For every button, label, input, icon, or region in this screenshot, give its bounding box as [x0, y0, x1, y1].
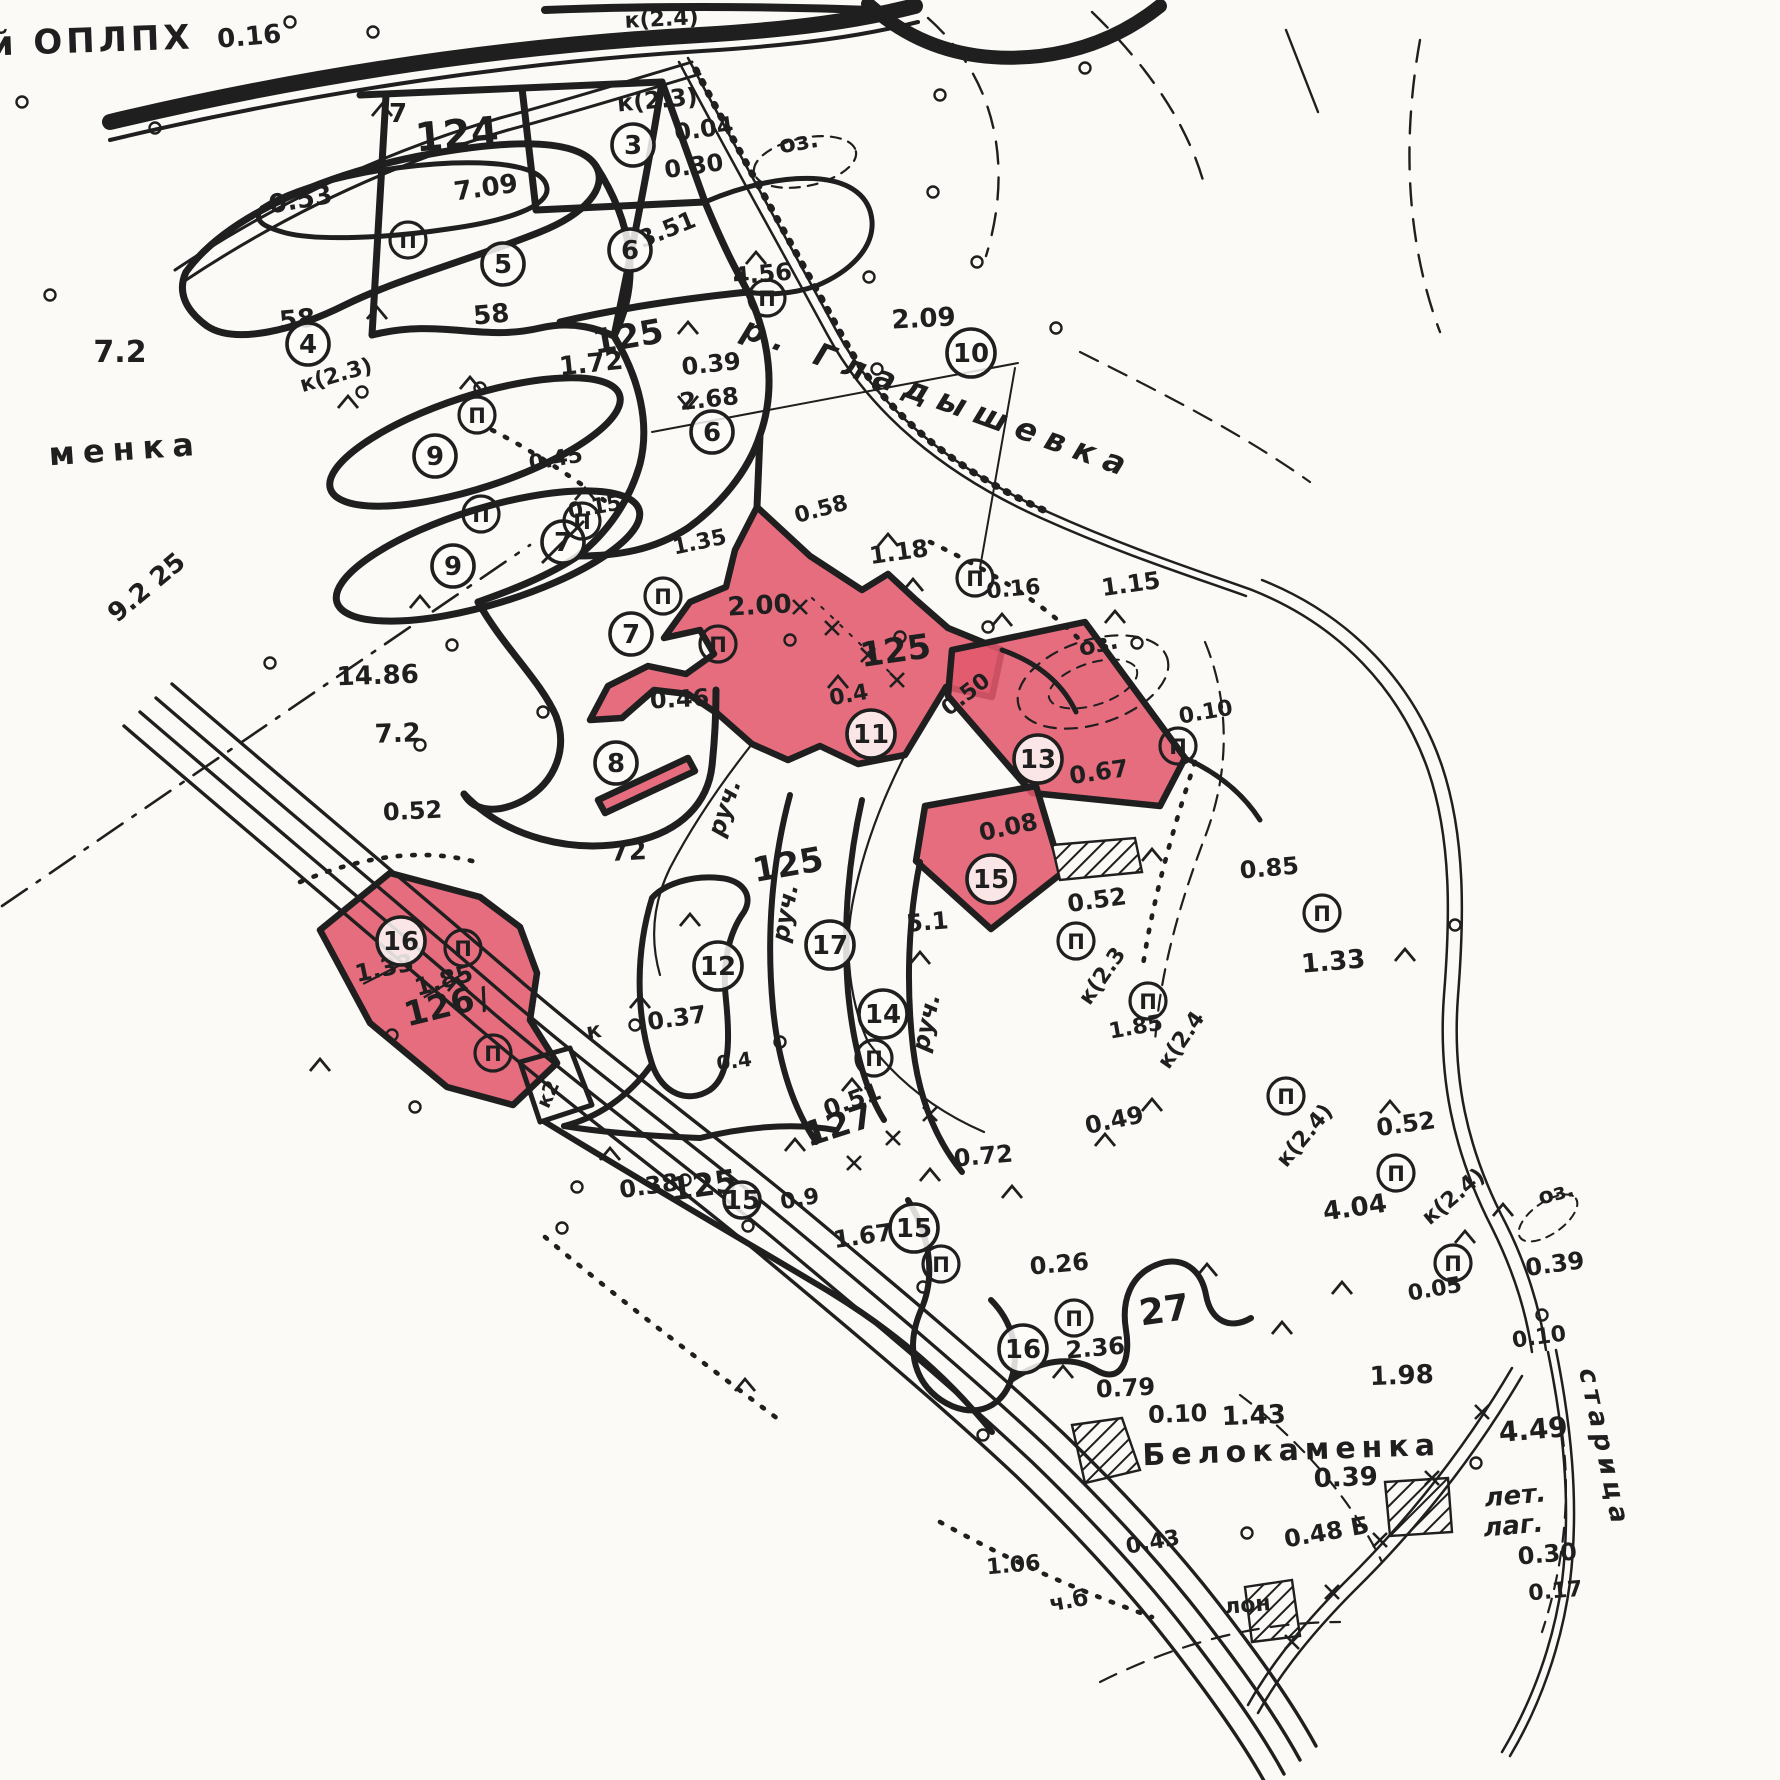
- map-label: 0.53: [266, 180, 334, 221]
- caret-symbol: [338, 396, 358, 408]
- caret-symbol: [1197, 1264, 1217, 1276]
- boundary-line: [464, 602, 561, 809]
- ring-symbol: [265, 658, 276, 669]
- plot-number: 6: [703, 418, 721, 448]
- contour-line: [545, 1237, 782, 1422]
- map-label: 1.33: [1300, 944, 1367, 979]
- map-label: 4.56: [732, 258, 793, 291]
- caret-symbol: [920, 1169, 940, 1181]
- caret-symbol: [1142, 1099, 1162, 1111]
- ring-symbol: [45, 290, 56, 301]
- plot-number: 9: [426, 442, 444, 472]
- ring-symbol: [864, 272, 875, 283]
- map-label: 0.58: [792, 491, 851, 529]
- pasture-symbol: П: [865, 1047, 883, 1071]
- map-label: 124: [413, 108, 500, 161]
- map-label: 9.2 25: [102, 547, 191, 629]
- boundary-line: [757, 435, 760, 507]
- map-label: 0.04: [673, 111, 736, 147]
- caret-symbol: [735, 1379, 755, 1391]
- pasture-symbol: П: [472, 503, 490, 527]
- map-label: менка: [47, 425, 203, 474]
- map-label: 0.49: [1082, 1100, 1146, 1140]
- map-label: 0.10: [1510, 1321, 1567, 1353]
- ring-symbol: [410, 1102, 421, 1113]
- map-label: лон: [1223, 1591, 1271, 1620]
- map-label: 125: [590, 311, 667, 363]
- plot-number: 13: [1020, 745, 1056, 775]
- pasture-symbol: П: [932, 1253, 950, 1277]
- map-label: 0.30: [1517, 1538, 1578, 1571]
- boundary-line: [1185, 758, 1260, 820]
- ring-symbol: [928, 187, 939, 198]
- pasture-symbol: П: [573, 510, 591, 534]
- ring-symbol: [1132, 638, 1143, 649]
- map-label: 0.39: [680, 347, 742, 381]
- map-label: 72: [610, 836, 648, 868]
- ring-symbol: [1471, 1458, 1482, 1469]
- plot-number: 5: [494, 250, 512, 280]
- hatched-building: [1385, 1478, 1452, 1536]
- caret-symbol: [1002, 1186, 1022, 1198]
- map-label: 0.39: [1524, 1246, 1587, 1282]
- ring-symbol: [368, 27, 379, 38]
- ring-symbol: [17, 97, 28, 108]
- pasture-symbol: П: [399, 229, 417, 253]
- map-label: 0.16: [216, 19, 283, 54]
- caret-symbol: [1272, 1322, 1292, 1334]
- map-label: 0.46: [649, 683, 710, 714]
- map-label: ч.б: [1048, 1586, 1091, 1617]
- hatched-area: [1052, 838, 1142, 880]
- ring-symbol: [572, 1182, 583, 1193]
- contour-line: [1409, 40, 1440, 332]
- map-label: 2.00: [727, 589, 793, 622]
- map-label: 0.37: [646, 1000, 709, 1036]
- map-label: 0.9: [779, 1184, 822, 1215]
- pasture-symbol: П: [654, 585, 672, 609]
- contour-line: [1100, 1622, 1340, 1682]
- ring-symbol: [972, 257, 983, 268]
- map-label: 5.1: [905, 906, 950, 938]
- plot-number: 3: [624, 131, 642, 161]
- map-label: к: [584, 1018, 603, 1045]
- pasture-symbol: П: [468, 404, 486, 428]
- plot-number: 14: [865, 1000, 901, 1030]
- map-label: оз.: [1536, 1177, 1578, 1211]
- plot-number: 4: [299, 330, 317, 360]
- map-label: 1.06: [985, 1551, 1041, 1581]
- map-label: к(2.4): [1417, 1164, 1490, 1231]
- plot-number: 10: [953, 339, 989, 369]
- pasture-symbol: П: [484, 1042, 502, 1066]
- caret-symbol: [1332, 1282, 1352, 1294]
- caret-symbol: [1455, 1231, 1475, 1243]
- contour-line: [2, 545, 530, 906]
- map-label: старица: [1572, 1365, 1635, 1531]
- caret-symbol: [1105, 611, 1125, 623]
- ring-symbol: [630, 1020, 641, 1031]
- pasture-symbol: П: [1313, 902, 1331, 926]
- map-label: 0.79: [1095, 1372, 1156, 1403]
- map-label: 27: [1137, 1287, 1192, 1335]
- label-layer: й ОПЛПХ0.16к(2.4)оз.менка7.29.2 250.5312…: [0, 5, 1636, 1620]
- caret-symbol: [910, 952, 930, 964]
- highlighted-plot-13-area: [948, 622, 1185, 806]
- ring-symbol: [983, 622, 994, 633]
- map-label: 0.10: [1148, 1399, 1208, 1429]
- map-label: 7.2: [93, 335, 146, 370]
- map-label: 0.26: [1029, 1248, 1090, 1281]
- map-label: 2.09: [891, 302, 957, 335]
- ring-symbol: [447, 640, 458, 651]
- map-label: 1.43: [1221, 1400, 1286, 1432]
- map-label: 0.45: [527, 443, 585, 477]
- ring-symbol: [935, 90, 946, 101]
- map-label: 1.15: [1100, 566, 1163, 602]
- map-label: 14.86: [336, 660, 419, 693]
- plot-number: 16: [383, 927, 419, 957]
- plot-number: 11: [853, 720, 889, 750]
- forestry-map-canvas: й ОПЛПХ0.16к(2.4)оз.менка7.29.2 250.5312…: [0, 0, 1780, 1780]
- cross-symbol: [847, 1156, 861, 1170]
- caret-symbol: [903, 579, 923, 591]
- plot-number: 7: [622, 620, 640, 650]
- plot-number: 8: [607, 749, 625, 779]
- map-label: 1.18: [868, 534, 931, 570]
- map-label: 1.98: [1369, 1360, 1434, 1392]
- map-label: 1.67: [832, 1218, 895, 1254]
- boundary-line: [564, 1126, 700, 1138]
- plot-number: 12: [700, 952, 736, 982]
- map-label: 125: [750, 839, 827, 891]
- map-label: 0.52: [382, 795, 443, 826]
- ring-symbol: [538, 707, 549, 718]
- ring-symbol: [1450, 920, 1461, 931]
- ring-symbol: [1080, 63, 1091, 74]
- map-label: 0.30: [663, 148, 726, 184]
- map-label: й ОПЛПХ: [0, 17, 194, 64]
- pasture-symbol: П: [966, 567, 984, 591]
- caret-symbol: [1395, 949, 1415, 961]
- ring-symbol: [1051, 323, 1062, 334]
- ring-symbol: [978, 1430, 989, 1441]
- map-label: лаг.: [1482, 1508, 1544, 1543]
- caret-symbol: [678, 322, 698, 334]
- caret-symbol: [410, 596, 430, 608]
- plot-number: 6: [621, 236, 639, 266]
- ring-symbol: [357, 387, 368, 398]
- caret-symbol: [785, 1139, 805, 1151]
- map-label: 0.05: [1406, 1273, 1464, 1307]
- pasture-symbol: П: [1387, 1162, 1405, 1186]
- contour-line: [1286, 30, 1318, 112]
- pasture-symbol: П: [1065, 1307, 1083, 1331]
- map-label: 127: [799, 1096, 879, 1156]
- plot-number: 9: [444, 552, 462, 582]
- plot-number: 15: [896, 1214, 932, 1244]
- map-label: 0.43: [1124, 1526, 1182, 1560]
- pasture-symbol: П: [709, 633, 727, 657]
- map-label: 4.04: [1321, 1189, 1389, 1228]
- ring-symbol: [557, 1223, 568, 1234]
- map-label: 0.39: [1313, 1462, 1378, 1494]
- map-label: 0.85: [1239, 852, 1300, 885]
- caret-symbol: [1053, 1366, 1073, 1378]
- map-label: оз.: [777, 125, 821, 159]
- map-label: к(2.3): [616, 83, 699, 118]
- plot-number: 15: [973, 865, 1009, 895]
- boundary-line: [372, 95, 386, 335]
- road-layer: [110, 4, 1522, 1780]
- contour-line: [940, 1522, 1152, 1617]
- map-label: к(2.4): [1272, 1099, 1339, 1172]
- pasture-symbol: П: [1277, 1085, 1295, 1109]
- plot-number: 17: [812, 931, 848, 961]
- map-label: 7.09: [452, 169, 520, 208]
- plot-number: 15: [724, 1186, 760, 1216]
- scanned-forestry-map: й ОПЛПХ0.16к(2.4)оз.менка7.29.2 250.5312…: [0, 0, 1780, 1780]
- top-road-band: [545, 7, 872, 10]
- map-label: 0.52: [1375, 1106, 1438, 1142]
- caret-symbol: [310, 1059, 330, 1071]
- marker-layer: 34566109977811131512171416151516ПППППППП…: [287, 124, 1471, 1373]
- ring-symbol: [1242, 1528, 1253, 1539]
- ring-symbol: [285, 17, 296, 28]
- pasture-symbol: П: [1139, 990, 1157, 1014]
- pasture-symbol: П: [1169, 735, 1187, 759]
- map-label: 0.72: [953, 1140, 1014, 1173]
- pasture-symbol: П: [1444, 1252, 1462, 1276]
- map-label: 58: [472, 299, 511, 332]
- pasture-symbol: П: [758, 287, 776, 311]
- map-label: 4.49: [1497, 1410, 1569, 1449]
- pasture-symbol: П: [454, 937, 472, 961]
- map-label: к(2.4: [1153, 1007, 1210, 1074]
- ring-symbol: [743, 1221, 754, 1232]
- map-label: 0.4: [715, 1047, 753, 1076]
- map-label: 0.17: [1527, 1577, 1583, 1607]
- map-label: 0.48 Б: [1282, 1511, 1371, 1553]
- map-label: Белокаменка: [1142, 1428, 1442, 1473]
- map-label: 0.52: [1066, 882, 1129, 918]
- caret-symbol: [1142, 849, 1162, 861]
- pasture-symbol: П: [1067, 930, 1085, 954]
- caret-symbol: [680, 914, 700, 926]
- map-label: к(2.4): [624, 5, 699, 34]
- plot-number: 16: [1005, 1335, 1041, 1365]
- map-label: 0.10: [1177, 696, 1235, 730]
- boundary-line: [522, 88, 536, 210]
- highway-band: [124, 726, 1268, 1780]
- river-south-branch: [1252, 590, 1532, 1352]
- cross-symbol: [886, 1131, 900, 1145]
- caret-symbol: [992, 614, 1012, 626]
